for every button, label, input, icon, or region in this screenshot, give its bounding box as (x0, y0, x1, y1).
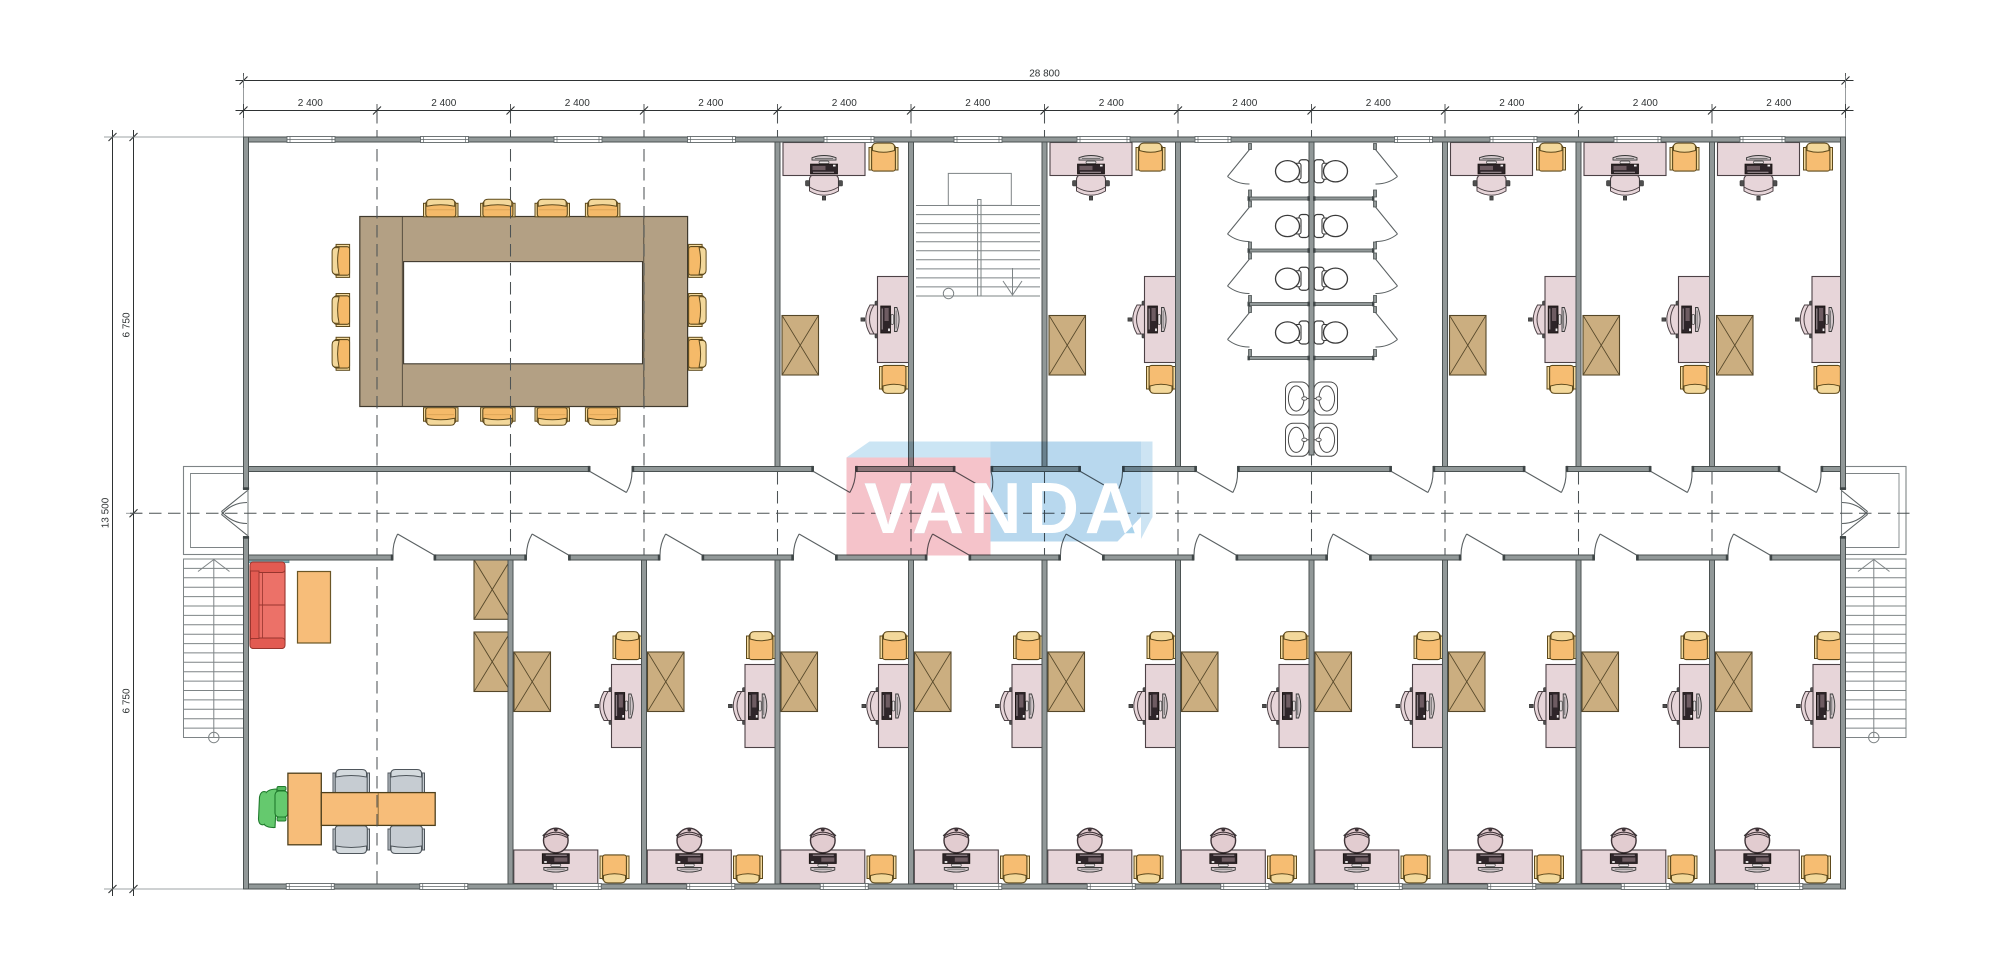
svg-text:2 400: 2 400 (832, 98, 857, 109)
svg-text:2 400: 2 400 (1766, 98, 1791, 109)
svg-text:2 400: 2 400 (1232, 98, 1257, 109)
svg-text:2 400: 2 400 (965, 98, 990, 109)
svg-text:2 400: 2 400 (1633, 98, 1658, 109)
svg-text:13 500: 13 500 (101, 497, 112, 528)
svg-text:2 400: 2 400 (1099, 98, 1124, 109)
svg-text:2 400: 2 400 (1499, 98, 1524, 109)
svg-text:2 400: 2 400 (298, 98, 323, 109)
svg-text:28 800: 28 800 (1029, 69, 1060, 80)
svg-text:6 750: 6 750 (122, 312, 133, 337)
svg-text:VANDA: VANDA (864, 469, 1142, 549)
svg-text:2 400: 2 400 (1366, 98, 1391, 109)
svg-text:2 400: 2 400 (698, 98, 723, 109)
svg-text:2 400: 2 400 (565, 98, 590, 109)
svg-text:6 750: 6 750 (122, 688, 133, 713)
svg-text:2 400: 2 400 (431, 98, 456, 109)
